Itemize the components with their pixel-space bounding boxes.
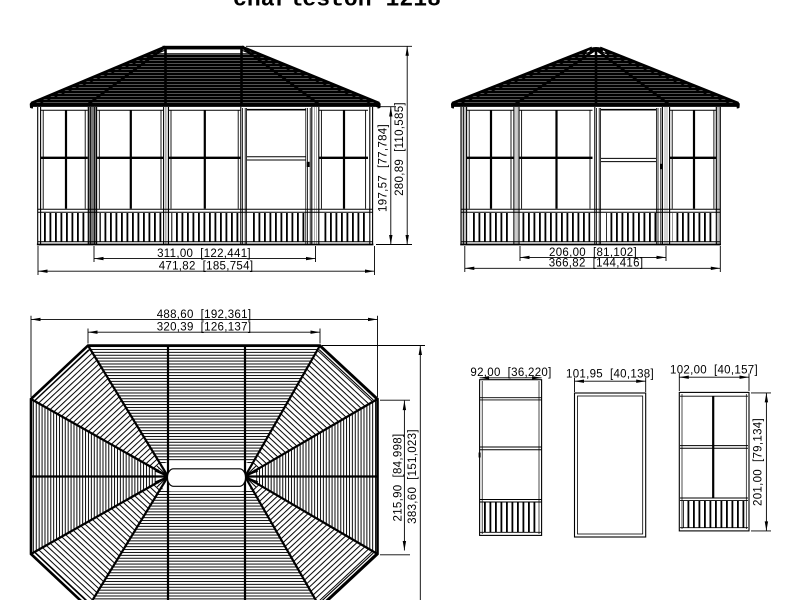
svg-text:383,60 [151,023]: 383,60 [151,023] bbox=[407, 429, 419, 524]
svg-text:102,00 [40,157]: 102,00 [40,157] bbox=[670, 364, 758, 376]
svg-text:101,95 [40,138]: 101,95 [40,138] bbox=[566, 369, 654, 381]
svg-text:311,00 [122,441]: 311,00 [122,441] bbox=[157, 248, 251, 260]
svg-text:197,57 [77,784]: 197,57 [77,784] bbox=[378, 124, 390, 212]
svg-text:92,00 [36,220]: 92,00 [36,220] bbox=[470, 367, 551, 379]
svg-text:201,00 [79,134]: 201,00 [79,134] bbox=[753, 418, 765, 506]
svg-text:471,82 [185,754]: 471,82 [185,754] bbox=[159, 261, 254, 273]
svg-text:320,39 [126,137]: 320,39 [126,137] bbox=[157, 322, 252, 334]
svg-text:215,90 [84,998]: 215,90 [84,998] bbox=[393, 434, 405, 522]
svg-text:366,82 [144,416]: 366,82 [144,416] bbox=[549, 258, 644, 270]
svg-text:488,60 [192,361]: 488,60 [192,361] bbox=[157, 309, 252, 321]
svg-text:280,89 [110,585]: 280,89 [110,585] bbox=[394, 102, 406, 196]
svg-text:charleston 1218: charleston 1218 bbox=[233, 0, 441, 13]
